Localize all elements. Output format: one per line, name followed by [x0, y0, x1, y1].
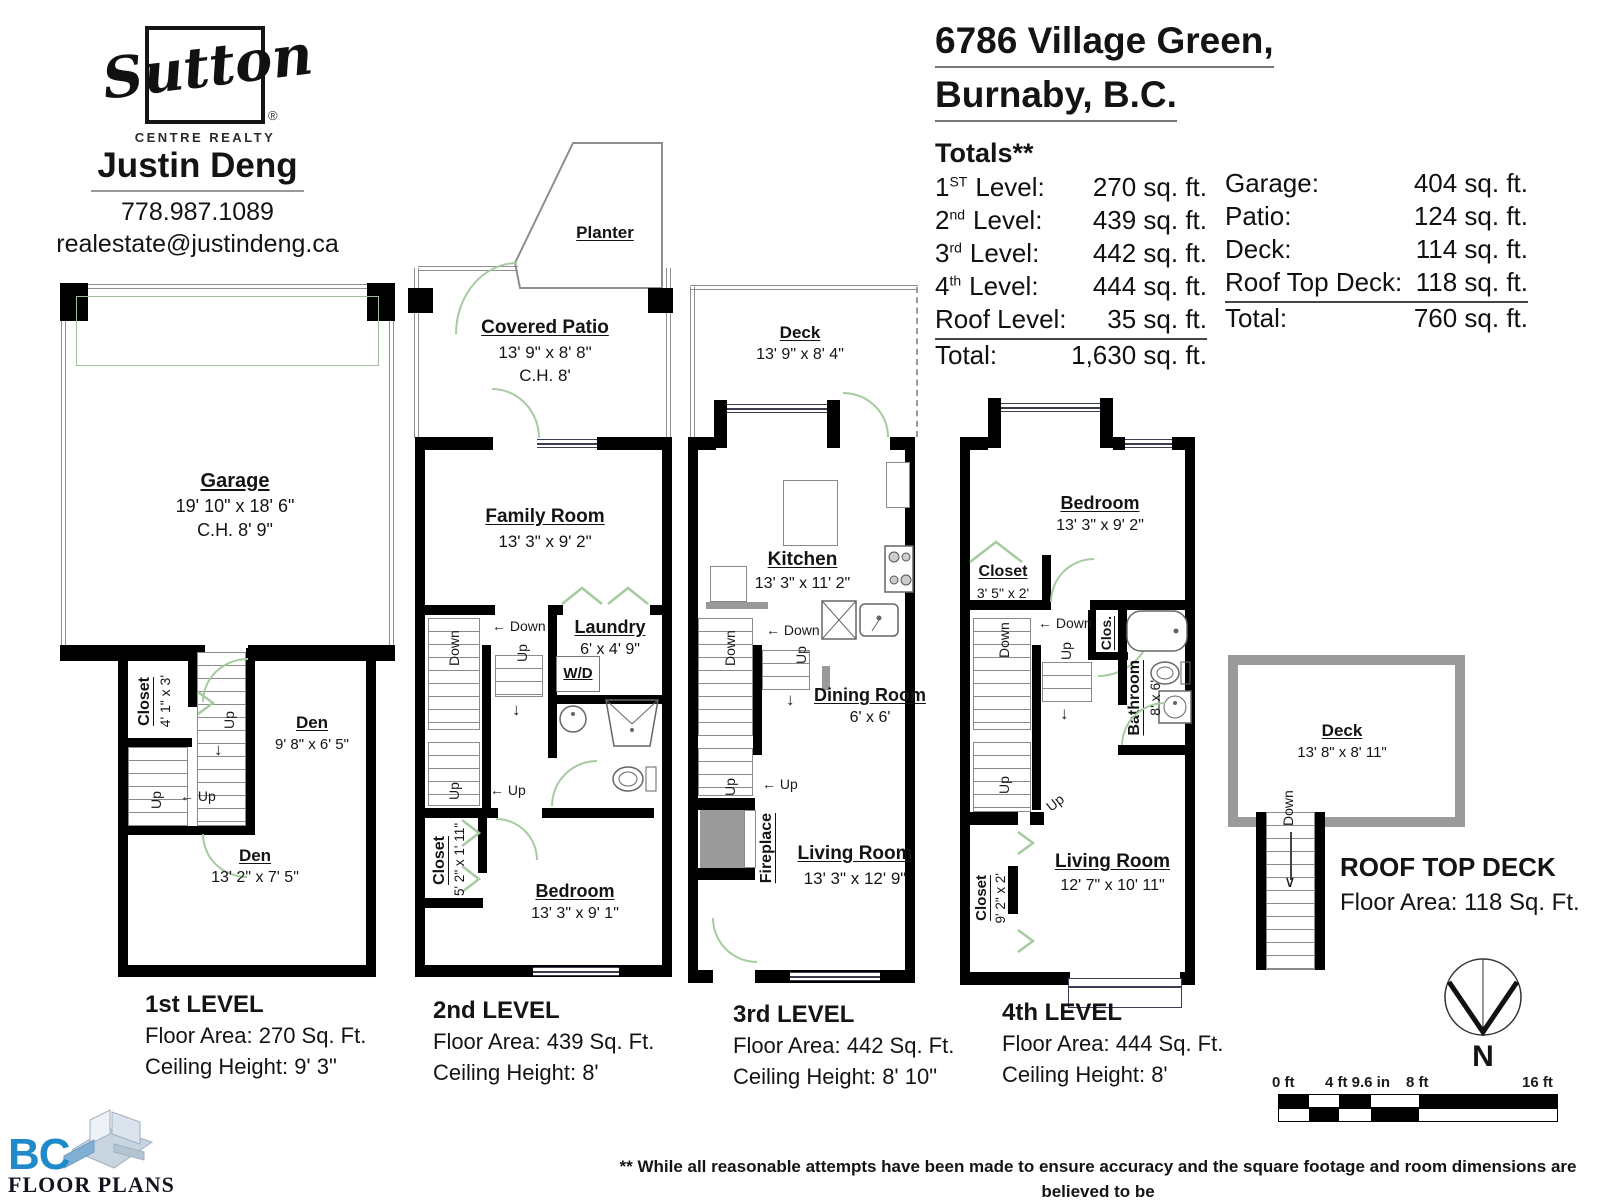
room-label-roof-deck: Deck 13' 8" x 8' 11": [1272, 720, 1412, 763]
rd: 13' 3" x 11' 2": [725, 574, 880, 595]
wall: [648, 288, 673, 313]
scale-tick-2: 8 ft: [1406, 1074, 1429, 1091]
wall: [1113, 437, 1125, 450]
ct: 1st LEVEL: [145, 990, 366, 1019]
room-label-dining: Dining Room 6' x 6': [795, 684, 945, 729]
value: 118 sq. ft.: [1416, 267, 1528, 298]
rn: Family Room: [460, 505, 630, 530]
window: [727, 404, 827, 413]
value: 442 sq. ft.: [1093, 238, 1207, 269]
agent-email[interactable]: realestate@justindeng.ca: [25, 230, 370, 259]
stair-label-up: Up: [221, 693, 237, 729]
rotated-text: 5' 2" x 1' 11": [452, 823, 467, 896]
span: Up: [198, 788, 216, 804]
rd: 13' 3" x 9' 2": [1025, 516, 1175, 537]
polyline: [970, 542, 1022, 562]
bifold-door-chevron: [606, 586, 650, 606]
room-label-closet2-l4: Closet 9' 2" x 2': [968, 852, 1012, 944]
span: 4thLevel:: [935, 271, 1039, 302]
value: 114 sq. ft.: [1416, 234, 1528, 265]
arrow-down-icon: ↓: [786, 690, 795, 710]
value: 270 sq. ft.: [1093, 172, 1207, 203]
ordinal: 2: [935, 205, 949, 235]
rd: C.H. 8' 9": [130, 519, 340, 542]
rd: 13' 9" x 8' 4": [735, 345, 865, 366]
window: [1001, 403, 1100, 412]
circle: [890, 576, 898, 584]
rd: 19' 10" x 18' 6": [130, 495, 340, 518]
totals-row-total-right: Total:760 sq. ft.: [1225, 303, 1528, 334]
floor-plan-sheet: Sutton ® CENTRE REALTY Justin Deng 778.9…: [0, 0, 1600, 1200]
wall: [753, 645, 762, 755]
ordinal: 4: [935, 271, 949, 301]
wall: [965, 600, 1045, 610]
scale-tick-1: 4 ft 9.6 in: [1325, 1074, 1390, 1091]
room-label-kitchen: Kitchen 13' 3" x 11' 2": [725, 548, 880, 594]
scale-bar-row1: [1278, 1094, 1558, 1108]
rn: Den: [170, 845, 340, 867]
totals-title: Totals**: [935, 138, 1034, 169]
thin-wall: [88, 284, 367, 289]
rd: 13' 3" x 12' 9": [770, 868, 940, 890]
polyline: [1018, 930, 1033, 952]
disclaimer-line-1: ** While all reasonable attempts have be…: [598, 1155, 1598, 1200]
polyline: [562, 588, 602, 604]
div: [1309, 1109, 1339, 1121]
rd: 13' 3" x 9' 2": [460, 531, 630, 553]
value: 404 sq. ft.: [1414, 168, 1528, 199]
bcfp-floor-plans-text: FLOOR PLANS: [8, 1172, 175, 1198]
span: 3rdLevel:: [935, 238, 1039, 269]
registered-mark: ®: [268, 108, 278, 123]
stair-label-down: Down: [1280, 778, 1296, 826]
value: 439 sq. ft.: [1093, 205, 1207, 236]
span: 1STLevel:: [935, 172, 1045, 203]
room-label-laundry: Laundry 6' x 4' 9": [555, 616, 665, 661]
room-label-family-room: Family Room 13' 3" x 9' 2": [460, 505, 630, 553]
stair-label-up: Up: [514, 632, 530, 662]
room-label-deck-l3: Deck 13' 9" x 8' 4": [735, 322, 865, 366]
value: 444 sq. ft.: [1093, 271, 1207, 302]
fridge: [886, 462, 910, 508]
wall: [960, 972, 1070, 985]
wall: [988, 398, 1001, 448]
rn: Bedroom: [495, 880, 655, 903]
arrow-down-icon: ↓: [1060, 704, 1069, 724]
value: 124 sq. ft.: [1414, 201, 1528, 232]
rd: 6' x 6': [795, 708, 945, 729]
caption-3rd-level: 3rd LEVEL Floor Area: 442 Sq. Ft. Ceilin…: [733, 1000, 954, 1091]
window: [537, 439, 597, 448]
room-label-den1: Den 9' 8" x 6' 5": [256, 712, 368, 755]
thin-wall: [690, 285, 918, 290]
circle: [902, 553, 910, 561]
span: Roof Top Deck:: [1225, 267, 1402, 298]
rotated-text: 9' 2" x 2': [993, 873, 1008, 923]
stair-label-up: Up: [793, 636, 809, 664]
stair-label-up: Up: [1058, 632, 1074, 660]
disclaimer: ** While all reasonable attempts have be…: [598, 1155, 1598, 1200]
rotated-text: Closet: [973, 875, 990, 921]
washer-dryer-label: W/D: [563, 665, 592, 682]
stair-label-up-h: ← Up: [180, 788, 216, 804]
span: Total:: [1225, 303, 1287, 334]
span: Up: [780, 776, 798, 792]
door-arc: [1050, 558, 1094, 602]
closet-rod-chevron: [968, 540, 1024, 564]
cl: Floor Area: 118 Sq. Ft.: [1340, 888, 1580, 917]
ct: 3rd LEVEL: [733, 1000, 954, 1029]
span: Total:: [935, 340, 997, 371]
cl: Ceiling Height: 8': [1002, 1062, 1223, 1089]
sutton-logo-text: Sutton: [97, 21, 318, 113]
span: Down: [1056, 615, 1092, 631]
circle: [877, 616, 882, 621]
value: 35 sq. ft.: [1107, 304, 1207, 335]
value: 1,630 sq. ft.: [1071, 340, 1207, 371]
rect: [646, 767, 656, 791]
rn: Deck: [735, 322, 865, 344]
scale-tick-0: 0 ft: [1272, 1074, 1295, 1091]
rn: Kitchen: [725, 548, 880, 573]
stair-label-up: Up: [148, 775, 164, 809]
half-wall: [700, 810, 744, 868]
stair-label-down: Down: [722, 620, 738, 666]
rn: Bedroom: [1025, 492, 1175, 515]
wall: [60, 645, 205, 661]
room-label-bedroom-l4: Bedroom 13' 3" x 9' 2": [1025, 492, 1175, 537]
stair-label-down-h: ← Down: [1038, 615, 1092, 631]
rd: 13' 9" x 8' 8": [455, 342, 635, 364]
totals-row-level3: 3rdLevel: 442 sq. ft.: [935, 238, 1207, 269]
caption-2nd-level: 2nd LEVEL Floor Area: 439 Sq. Ft. Ceilin…: [433, 996, 654, 1087]
wall: [698, 798, 755, 810]
wall: [415, 437, 493, 450]
rn: Dining Room: [795, 684, 945, 707]
door-arc: [843, 392, 889, 437]
arrow-left-icon: ←: [180, 788, 194, 804]
kitchen-island: [783, 480, 838, 546]
window: [790, 972, 880, 981]
span: Level:: [969, 271, 1038, 301]
arrow-left-icon: ←: [1038, 615, 1052, 631]
room-label-closet-l2: Closet 5' 2" x 1' 11": [426, 820, 472, 900]
totals-row-level2: 2ndLevel: 439 sq. ft.: [935, 205, 1207, 236]
wall: [415, 437, 425, 977]
span: Roof Level:: [935, 304, 1067, 335]
thin-wall: [61, 321, 66, 647]
ordinal: 3: [935, 238, 949, 268]
scale-tick-3: 16 ft: [1522, 1074, 1553, 1091]
ct: 4th LEVEL: [1002, 998, 1223, 1027]
window: [533, 967, 619, 976]
ellipse: [619, 772, 637, 786]
span: Deck:: [1225, 234, 1291, 265]
compass-icon: [1442, 956, 1524, 1040]
ordinal: 1: [935, 172, 949, 202]
wall: [650, 605, 672, 615]
totals-row-level4: 4thLevel: 444 sq. ft.: [935, 271, 1207, 302]
arrow-down-icon: ↓: [214, 740, 223, 760]
stair-label-down: Down: [996, 612, 1012, 658]
circle: [630, 728, 634, 732]
rotated-text: Closet: [431, 836, 449, 885]
wall: [366, 645, 376, 977]
door-arc: [492, 388, 540, 438]
shower-icon: [604, 698, 660, 748]
sup: nd: [949, 206, 965, 222]
room-label-covered-patio: Covered Patio 13' 9" x 8' 8" C.H. 8': [455, 316, 635, 387]
wall: [1090, 600, 1195, 610]
div: [1371, 1109, 1419, 1121]
sup: rd: [949, 239, 961, 255]
bifold-door-chevron: [560, 586, 604, 606]
ct: ROOF TOP DECK: [1340, 852, 1580, 884]
wall: [688, 437, 698, 983]
address-line-1-text: 6786 Village Green,: [935, 20, 1274, 68]
span: Up: [1043, 791, 1067, 815]
rn: Living Room: [1030, 850, 1195, 875]
rotated-text: 4' 1" x 3': [157, 675, 173, 727]
rd: 13' 2" x 7' 5": [170, 868, 340, 889]
caption-roof-top-deck: ROOF TOP DECK Floor Area: 118 Sq. Ft.: [1340, 852, 1580, 917]
cl: Ceiling Height: 9' 3": [145, 1054, 366, 1081]
wall: [698, 868, 755, 880]
polygon: [515, 143, 662, 288]
wall: [827, 400, 840, 448]
room-label-garage: Garage 19' 10" x 18' 6" C.H. 8' 9": [130, 468, 340, 543]
wall: [425, 808, 498, 818]
scale-bar-row2: [1278, 1108, 1558, 1122]
dashed-edge: [916, 287, 918, 437]
arrow-left-icon: ←: [492, 618, 506, 634]
arrow-down-icon: ↓: [512, 700, 521, 720]
cl: Floor Area: 439 Sq. Ft.: [433, 1029, 654, 1056]
arrow-left-icon: ←: [762, 776, 776, 792]
address-line-2: Burnaby, B.C.: [935, 74, 1177, 122]
room-label-den2: Den 13' 2" x 7' 5": [170, 845, 340, 889]
value: 760 sq. ft.: [1414, 303, 1528, 334]
agent-name-text: Justin Deng: [91, 146, 303, 192]
div: [1419, 1095, 1557, 1107]
cl: Ceiling Height: 8': [433, 1060, 654, 1087]
arrow-left-icon: ←: [490, 782, 504, 798]
wall: [118, 965, 376, 977]
span: Up: [508, 782, 526, 798]
div: [1339, 1095, 1371, 1107]
address-line-1: 6786 Village Green,: [935, 20, 1274, 68]
agent-phone: 778.987.1089: [75, 198, 320, 227]
stair-label-up-h: ← Up: [762, 776, 798, 792]
room-label-clos: Clos.: [1094, 610, 1118, 656]
circle: [560, 706, 586, 732]
cl: Floor Area: 444 Sq. Ft.: [1002, 1031, 1223, 1058]
wall: [1256, 812, 1266, 970]
totals-row-roof-top-deck: Roof Top Deck:118 sq. ft.: [1225, 267, 1528, 303]
kitchen-sink-icon: [859, 603, 899, 637]
caption-1st-level: 1st LEVEL Floor Area: 270 Sq. Ft. Ceilin…: [145, 990, 366, 1081]
closet-rod-chevron: [1016, 928, 1036, 954]
wall: [688, 970, 713, 983]
cl: Ceiling Height: 8' 10": [733, 1064, 954, 1091]
thin-wall: [389, 321, 394, 647]
arrow-left-icon: ←: [766, 622, 780, 638]
circle: [901, 575, 911, 585]
ct: 2nd LEVEL: [433, 996, 654, 1025]
door-arc: [496, 818, 538, 860]
window: [1125, 439, 1172, 448]
totals-row-garage: Garage:404 sq. ft.: [1225, 168, 1528, 199]
sutton-logo-subtitle: CENTRE REALTY: [130, 130, 280, 145]
wall: [118, 645, 128, 977]
room-label-bedroom-l2: Bedroom 13' 3" x 9' 1": [495, 880, 655, 925]
sup: ST: [949, 173, 967, 189]
rd: 13' 8" x 8' 11": [1272, 743, 1412, 763]
rn: Deck: [1272, 720, 1412, 742]
totals-row-total: Total: 1,630 sq. ft.: [935, 340, 1207, 371]
cl: Floor Area: 270 Sq. Ft.: [145, 1023, 366, 1050]
address-line-2-text: Burnaby, B.C.: [935, 74, 1177, 122]
dishwasher-icon: [821, 600, 857, 640]
sink-icon: [556, 702, 590, 736]
arrow-down-icon: ∨: [1284, 872, 1296, 892]
stair-label-up-h: ← Up: [490, 782, 526, 798]
rn: Closet: [958, 562, 1048, 583]
closet-rod-chevron: [196, 690, 216, 716]
toilet-icon: [610, 762, 658, 796]
wall: [1032, 645, 1041, 810]
circle: [571, 712, 575, 716]
span: Level:: [970, 238, 1039, 268]
rn: Garage: [130, 468, 340, 494]
room-label-closet-l1: Closet 4' 1" x 3': [130, 660, 178, 742]
circle: [1173, 701, 1177, 705]
room-label-planter: Planter: [545, 222, 665, 244]
circle: [889, 552, 899, 562]
span: 2ndLevel:: [935, 205, 1042, 236]
room-label-closet1-l4: Closet 3' 5" x 2': [958, 562, 1048, 602]
div: [1279, 1095, 1309, 1107]
polyline: [198, 692, 213, 714]
span: Level:: [973, 205, 1042, 235]
garage-door: [76, 296, 379, 366]
totals-row-level1: 1STLevel: 270 sq. ft.: [935, 172, 1207, 203]
rect: [1181, 662, 1190, 684]
washer-dryer: W/D: [556, 656, 600, 692]
rd: C.H. 8': [455, 365, 635, 387]
rotated-text: Closet: [136, 677, 154, 726]
wall: [1315, 812, 1325, 970]
staircase: [1042, 662, 1092, 702]
polyline: [608, 588, 648, 604]
rect: [885, 546, 913, 592]
wall: [1030, 812, 1044, 825]
door-arc: [551, 760, 597, 806]
rn: Laundry: [555, 616, 665, 639]
stove-icon: [884, 545, 914, 593]
compass-north-label: N: [1442, 1040, 1524, 1074]
sup: th: [949, 272, 961, 288]
room-label-living-l3: Living Room 13' 3" x 12' 9": [770, 842, 940, 890]
totals-row-deck: Deck:114 sq. ft.: [1225, 234, 1528, 265]
wall: [1118, 745, 1195, 755]
caption-4th-level: 4th LEVEL Floor Area: 444 Sq. Ft. Ceilin…: [1002, 998, 1223, 1089]
thin-wall: [690, 287, 695, 439]
door-arc: [712, 918, 757, 963]
rotated-text: Clos.: [1098, 616, 1114, 650]
half-wall: [706, 602, 768, 609]
circle: [1174, 629, 1179, 634]
span: Patio:: [1225, 201, 1292, 232]
wall: [968, 812, 1018, 825]
rn: Den: [256, 712, 368, 734]
rd: 12' 7" x 10' 11": [1030, 876, 1195, 897]
wall: [597, 437, 672, 450]
bathtub-icon: [1126, 610, 1188, 652]
rd: 9' 8" x 6' 5": [256, 735, 368, 755]
fixture-box: [744, 810, 756, 868]
ellipse: [613, 767, 643, 791]
room-label-living-l4: Living Room 12' 7" x 10' 11": [1030, 850, 1195, 896]
cl: Floor Area: 442 Sq. Ft.: [733, 1033, 954, 1060]
wall: [1100, 398, 1113, 448]
wall: [415, 605, 495, 615]
stair-label-up: Up: [446, 766, 462, 800]
rn: Living Room: [770, 842, 940, 867]
totals-row-patio: Patio:124 sq. ft.: [1225, 201, 1528, 232]
rd: 13' 3" x 9' 1": [495, 904, 655, 925]
wall: [662, 437, 672, 977]
span: Level:: [975, 172, 1044, 202]
stair-label-up: Up: [996, 762, 1012, 794]
agent-name: Justin Deng: [75, 146, 320, 192]
span: Garage:: [1225, 168, 1319, 199]
rn: Planter: [545, 222, 665, 244]
wall: [551, 808, 654, 818]
rn: Covered Patio: [455, 316, 635, 341]
wall: [408, 288, 433, 313]
wall: [542, 808, 551, 818]
stair-label-up: Up: [722, 764, 738, 796]
totals-row-roof: Roof Level: 35 sq. ft.: [935, 304, 1207, 340]
stair-label-down: Down: [446, 620, 462, 666]
wall: [1180, 972, 1195, 985]
